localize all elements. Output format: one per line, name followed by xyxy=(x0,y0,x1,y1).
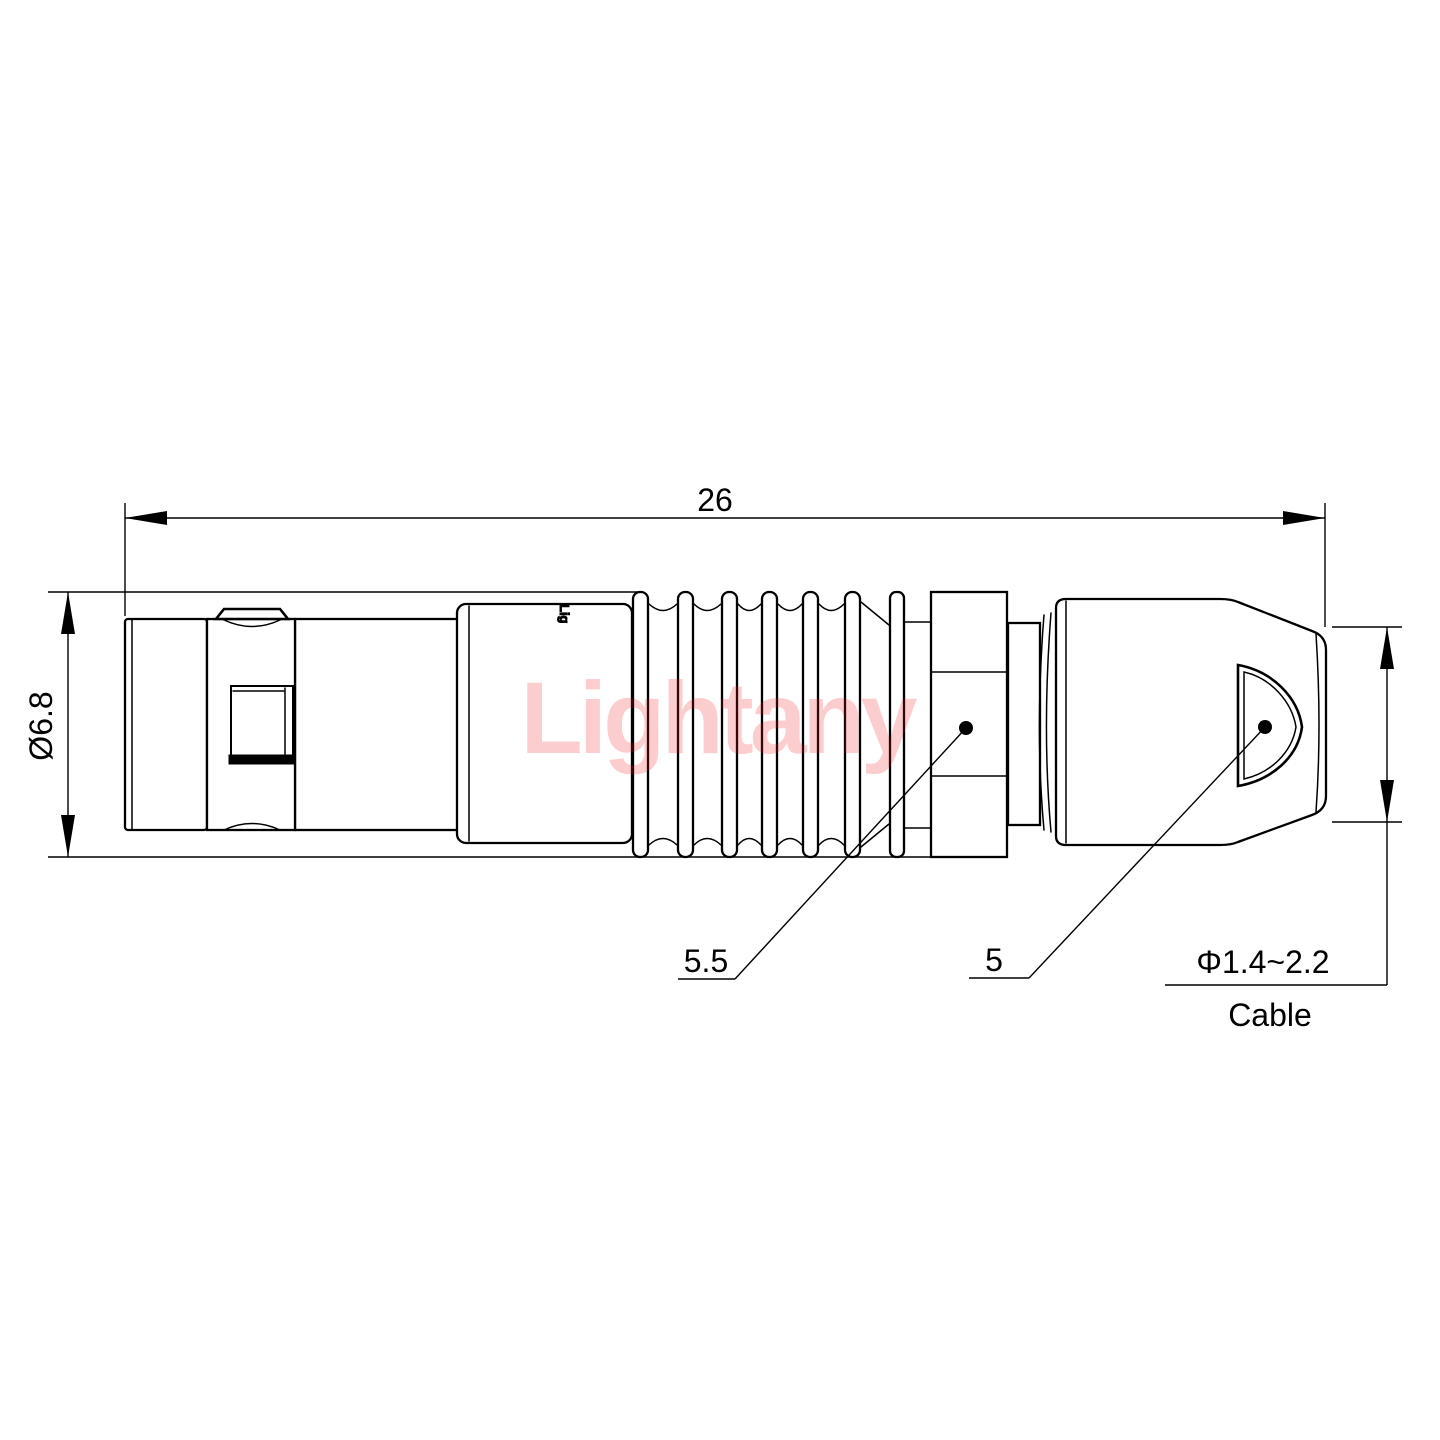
boot-width-value: 5 xyxy=(985,942,1003,978)
key-window-bottom-bar xyxy=(229,755,295,764)
front-ring xyxy=(125,619,207,830)
cable-range-value: Φ1.4~2.2 xyxy=(1196,944,1329,980)
brand-mark: Lig xyxy=(557,604,572,624)
arrowhead-up xyxy=(61,592,75,634)
c-ring-line-inner xyxy=(1047,613,1052,832)
arrowhead-down xyxy=(61,815,75,857)
arrowhead-right xyxy=(1283,511,1325,525)
arrowhead-left xyxy=(125,511,167,525)
key-window xyxy=(231,686,293,763)
latch-notch xyxy=(216,609,288,619)
overall-length-value: 26 xyxy=(697,482,733,518)
connector-technical-drawing: Lig Lightany 26 Ø6.8 5.5 xyxy=(0,0,1440,1440)
cable-label: Cable xyxy=(1228,997,1312,1033)
taper-top-edge xyxy=(861,602,889,625)
rear-cylinder xyxy=(1008,623,1040,825)
mid-barrel xyxy=(295,619,460,830)
watermark: Lightany xyxy=(521,661,918,775)
arrowhead-up xyxy=(1380,627,1394,669)
diameter-value: Ø6.8 xyxy=(23,691,59,760)
arrowhead-down xyxy=(1380,780,1394,822)
nut-width-value: 5.5 xyxy=(684,943,728,979)
